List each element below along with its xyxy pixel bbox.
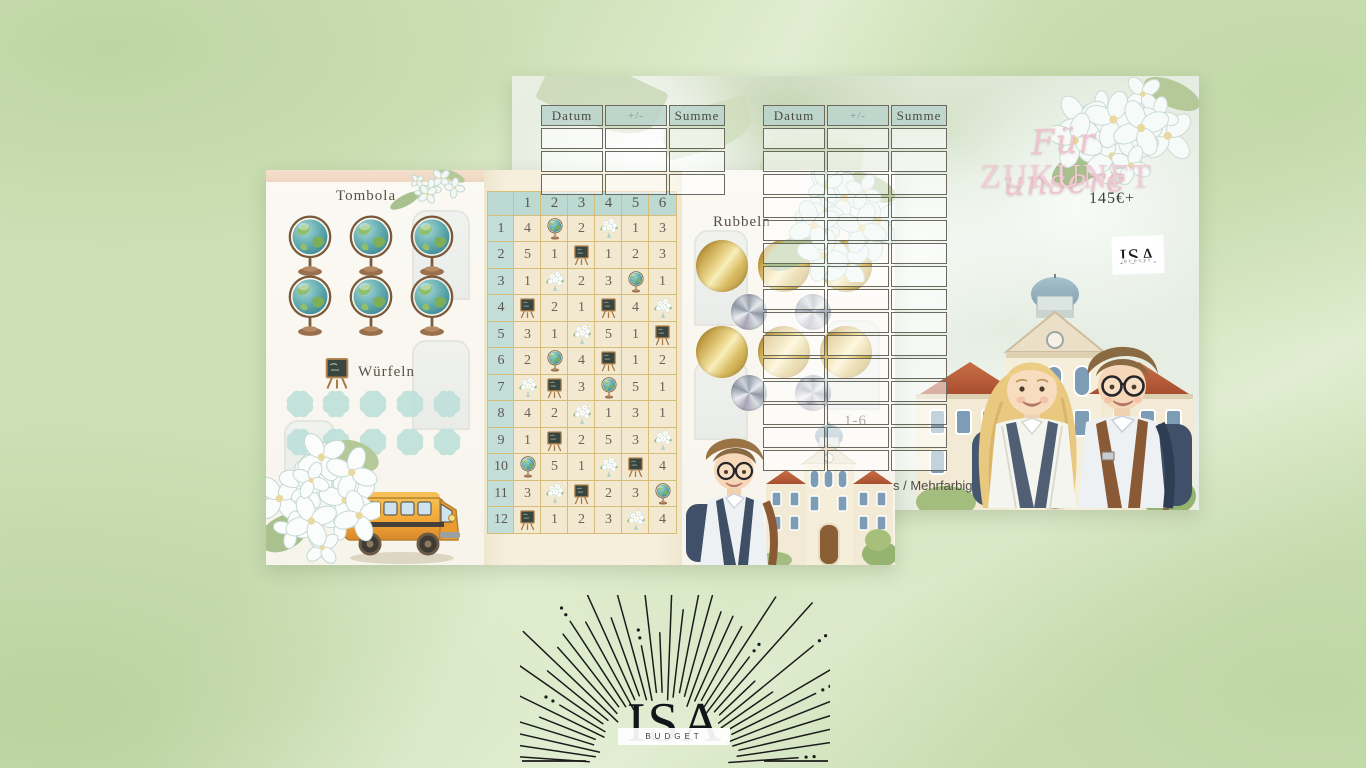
tracker-empty-cell — [763, 197, 825, 218]
chalkboard-icon — [545, 377, 564, 399]
tracker-header-cell: Summe — [891, 105, 947, 126]
grid-cell — [621, 268, 650, 296]
tracker-empty-cell — [827, 197, 889, 218]
grid-cell — [621, 453, 650, 481]
tracker-empty-cell — [891, 289, 947, 310]
flower-bouquet-icon — [626, 509, 646, 532]
globe-icon — [653, 482, 673, 506]
tombola-globe — [282, 272, 338, 345]
grid-cell: 4 — [513, 400, 542, 428]
tracker-empty-cell — [763, 289, 825, 310]
grid-row-label: 3 — [487, 268, 515, 296]
grid-cell: 3 — [621, 427, 650, 455]
tracker-empty-cell — [827, 128, 889, 149]
flower-bouquet-icon — [653, 429, 673, 452]
chalkboard-icon — [322, 356, 352, 390]
isa-brand-badge: ISA BUDGET — [1111, 235, 1164, 275]
grid-cell: 1 — [567, 453, 596, 481]
silver-scratch-circle — [731, 375, 767, 411]
grid-cell: 4 — [567, 347, 596, 375]
chalkboard-icon — [599, 350, 618, 372]
tombola-globe — [404, 272, 460, 345]
tracker-empty-cell — [763, 174, 825, 195]
tracker-empty-cell — [827, 220, 889, 241]
grid-cell: 3 — [594, 268, 623, 296]
chalkboard-icon — [518, 297, 537, 319]
grid-cell — [567, 400, 596, 428]
flower-bouquet-icon — [572, 323, 592, 346]
tracker-empty-cell — [541, 151, 603, 172]
grid-cell: 2 — [567, 215, 596, 243]
silver-scratch-circle — [731, 294, 767, 330]
grid-cell: 2 — [648, 347, 677, 375]
globe-icon — [599, 376, 619, 400]
grid-cell: 3 — [594, 506, 623, 534]
grid-cell: 1 — [567, 294, 596, 322]
globe-icon — [626, 270, 646, 294]
tracker-empty-cell — [763, 450, 825, 471]
tracker-empty-cell — [763, 358, 825, 379]
tracker-empty-cell — [605, 151, 667, 172]
grid-cell — [594, 347, 623, 375]
tracker-empty-cell — [541, 128, 603, 149]
grid-cell: 2 — [567, 427, 596, 455]
tracker-empty-cell — [669, 151, 725, 172]
gold-scratch-circle — [696, 240, 748, 292]
grid-cell: 2 — [540, 294, 569, 322]
tracker-empty-cell — [827, 335, 889, 356]
tracker-empty-cell — [827, 289, 889, 310]
flower-bouquet-icon — [653, 297, 673, 320]
grid-cell: 1 — [513, 427, 542, 455]
tracker-empty-cell — [763, 427, 825, 448]
tracker-empty-cell — [891, 335, 947, 356]
tracker-empty-cell — [827, 427, 889, 448]
grid-cell: 3 — [621, 480, 650, 508]
grid-cell — [594, 374, 623, 402]
variant-label: s / Mehrfarbig — [893, 478, 972, 493]
children-illustration — [950, 312, 1199, 510]
tracker-empty-cell — [669, 128, 725, 149]
grid-cell: 4 — [648, 506, 677, 534]
tracker-empty-cell — [827, 266, 889, 287]
grid-row-label: 8 — [487, 400, 515, 428]
tracker-empty-cell — [827, 151, 889, 172]
grid-cell: 1 — [513, 268, 542, 296]
grid-cell — [594, 453, 623, 481]
grid-cell — [594, 294, 623, 322]
grid-cell — [648, 427, 677, 455]
globe-icon — [404, 272, 460, 340]
flower-bouquet-icon — [599, 217, 619, 240]
savings-tracker-table-left: Datum+/-Summe — [541, 105, 725, 197]
flower-bouquet-icon — [545, 270, 565, 293]
tracker-empty-cell — [827, 404, 889, 425]
tracker-empty-cell — [891, 450, 947, 471]
globe-icon — [343, 272, 399, 340]
grid-cell — [540, 427, 569, 455]
chalkboard-icon — [518, 509, 537, 531]
tracker-empty-cell — [891, 174, 947, 195]
chalkboard-icon — [545, 430, 564, 452]
grid-cell — [567, 480, 596, 508]
grid-cell: 5 — [540, 453, 569, 481]
grid-cell: 4 — [621, 294, 650, 322]
tracker-header-cell: Datum — [763, 105, 825, 126]
grid-cell: 1 — [648, 268, 677, 296]
tracker-empty-cell — [891, 427, 947, 448]
flower-bouquet-icon — [572, 403, 592, 426]
tracker-empty-cell — [763, 404, 825, 425]
grid-cell: 2 — [567, 268, 596, 296]
grid-cell: 1 — [594, 241, 623, 269]
globe-icon — [518, 455, 538, 479]
logo-banner: BUDGET — [618, 728, 730, 745]
grid-cell — [648, 480, 677, 508]
grid-cell: 5 — [621, 374, 650, 402]
grid-cell: 2 — [513, 347, 542, 375]
isa-budget-logo: ISA BUDGET — [520, 595, 830, 768]
tracker-empty-cell — [763, 266, 825, 287]
grid-cell: 2 — [621, 241, 650, 269]
grid-cell: 2 — [594, 480, 623, 508]
tracker-empty-cell — [827, 450, 889, 471]
tracker-empty-cell — [763, 243, 825, 264]
tracker-empty-cell — [827, 243, 889, 264]
tracker-empty-cell — [891, 381, 947, 402]
grid-cell — [567, 321, 596, 349]
chalkboard-icon — [599, 297, 618, 319]
tracker-empty-cell — [891, 151, 947, 172]
chalkboard-icon — [322, 356, 352, 390]
grid-row-label: 2 — [487, 241, 515, 269]
savings-tracker-table-right: Datum+/-Summe — [763, 105, 947, 473]
globe-icon — [282, 272, 338, 340]
grid-cell — [594, 215, 623, 243]
tracker-empty-cell — [891, 243, 947, 264]
flower-bouquet-icon — [599, 456, 619, 479]
tracker-empty-cell — [669, 174, 725, 195]
tracker-empty-cell — [605, 174, 667, 195]
grid-row-label: 7 — [487, 374, 515, 402]
grid-cell: 3 — [513, 321, 542, 349]
grid-cell: 4 — [648, 453, 677, 481]
chalkboard-icon — [572, 244, 591, 266]
grid-cell — [540, 268, 569, 296]
tracker-empty-cell — [763, 312, 825, 333]
tracker-empty-cell — [891, 266, 947, 287]
grid-row-label: 1 — [487, 215, 515, 243]
tombola-title: Tombola — [336, 188, 396, 205]
grid-cell: 5 — [594, 427, 623, 455]
grid-cell: 4 — [513, 215, 542, 243]
flower-sprig-front-top — [390, 170, 466, 212]
grid-row-label: 9 — [487, 427, 515, 455]
price-label: 145€+ — [1072, 190, 1152, 208]
grid-cell: 1 — [540, 506, 569, 534]
logo-sub-text: BUDGET — [645, 732, 702, 741]
globe-icon — [404, 212, 460, 280]
grid-cell: 1 — [540, 241, 569, 269]
grid-row-label: 5 — [487, 321, 515, 349]
grid-cell: 1 — [621, 321, 650, 349]
grid-cell — [540, 347, 569, 375]
dice-number-grid: 12345614 2 13251 12331 23 — [488, 192, 676, 534]
grid-cell: 1 — [621, 347, 650, 375]
grid-cell — [513, 453, 542, 481]
tracker-empty-cell — [763, 220, 825, 241]
grid-column-header: 1 — [513, 191, 542, 216]
tracker-empty-cell — [891, 197, 947, 218]
grid-corner-cell — [487, 191, 515, 216]
grid-cell — [540, 215, 569, 243]
tracker-empty-cell — [763, 381, 825, 402]
flower-bouquet-icon — [518, 376, 538, 399]
tracker-empty-cell — [891, 358, 947, 379]
tracker-empty-cell — [763, 128, 825, 149]
grid-row-label: 6 — [487, 347, 515, 375]
grid-cell: 1 — [594, 400, 623, 428]
grid-cell — [513, 374, 542, 402]
grid-cell: 2 — [567, 506, 596, 534]
tracker-empty-cell — [891, 128, 947, 149]
tracker-empty-cell — [541, 174, 603, 195]
tombola-globe — [343, 272, 399, 345]
grid-cell — [540, 374, 569, 402]
chalkboard-icon — [653, 324, 672, 346]
grid-cell: 1 — [648, 400, 677, 428]
tracker-empty-cell — [827, 174, 889, 195]
grid-cell — [513, 294, 542, 322]
grid-cell: 2 — [540, 400, 569, 428]
grid-cell: 3 — [621, 400, 650, 428]
hydrangea-cluster-front-bottom-left — [266, 428, 380, 565]
tracker-header-cell: +/- — [605, 105, 667, 126]
grid-cell: 3 — [567, 374, 596, 402]
grid-cell — [621, 506, 650, 534]
grid-cell: 1 — [540, 321, 569, 349]
tracker-header-cell: Summe — [669, 105, 725, 126]
tracker-header-cell: +/- — [827, 105, 889, 126]
grid-cell: 1 — [621, 215, 650, 243]
grid-row-label: 12 — [487, 506, 515, 534]
tracker-empty-cell — [891, 220, 947, 241]
tracker-empty-cell — [605, 128, 667, 149]
grid-cell: 5 — [594, 321, 623, 349]
grid-row-label: 10 — [487, 453, 515, 481]
tracker-empty-cell — [827, 312, 889, 333]
globe-icon — [545, 349, 565, 373]
grid-cell — [513, 506, 542, 534]
chalkboard-icon — [572, 483, 591, 505]
grid-cell: 3 — [513, 480, 542, 508]
globe-icon — [545, 217, 565, 241]
tracker-empty-cell — [891, 312, 947, 333]
grid-cell: 3 — [648, 241, 677, 269]
flower-bouquet-icon — [545, 482, 565, 505]
grid-cell — [648, 294, 677, 322]
tracker-empty-cell — [763, 151, 825, 172]
gold-scratch-circle — [696, 326, 748, 378]
tracker-empty-cell — [827, 381, 889, 402]
grid-cell: 5 — [513, 241, 542, 269]
globe-icon — [282, 212, 338, 280]
grid-cell: 1 — [648, 374, 677, 402]
tracker-empty-cell — [827, 358, 889, 379]
tracker-header-cell: Datum — [541, 105, 603, 126]
grid-cell — [648, 321, 677, 349]
chalkboard-icon — [626, 456, 645, 478]
tracker-empty-cell — [763, 335, 825, 356]
grid-cell: 3 — [648, 215, 677, 243]
grid-cell — [567, 241, 596, 269]
globe-icon — [343, 212, 399, 280]
grid-row-label: 4 — [487, 294, 515, 322]
wuerfeln-title: Würfeln — [358, 364, 415, 381]
grid-row-label: 11 — [487, 480, 515, 508]
tracker-empty-cell — [891, 404, 947, 425]
grid-cell — [540, 480, 569, 508]
